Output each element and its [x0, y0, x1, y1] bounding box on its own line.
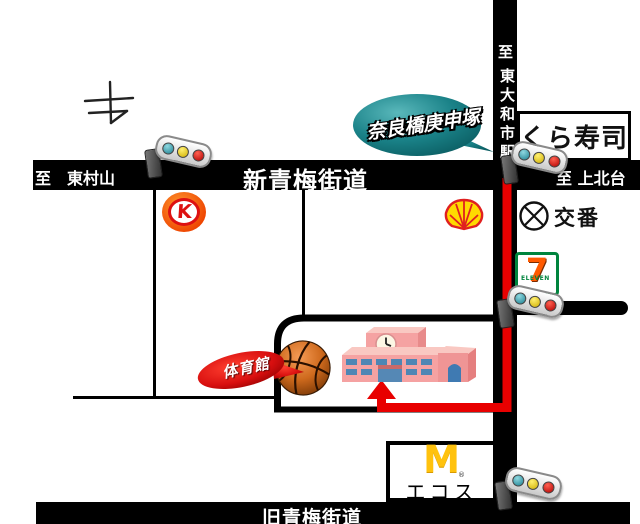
traffic-signal-main-intersection	[502, 143, 562, 187]
seven-eleven-word: ELEVEN	[521, 275, 550, 282]
signal-capsule	[509, 139, 570, 176]
ecos-label: エコス	[390, 476, 493, 505]
koban-circle-x-icon	[518, 200, 550, 232]
signal-capsule	[503, 465, 564, 502]
gym-arch-door	[448, 364, 461, 382]
signal-lamp-yellow	[176, 144, 190, 158]
signal-lamp-yellow	[528, 294, 542, 308]
traffic-signal-south	[496, 469, 556, 513]
koban-label: 交番	[554, 202, 600, 232]
dest-label-higashimurayama: 至 東村山	[35, 165, 115, 189]
circle-k-inner: K	[168, 198, 200, 226]
road-name-shin-oume: 新青梅街道	[243, 161, 368, 196]
traffic-signal-middle	[498, 287, 558, 331]
shell-icon	[444, 198, 484, 232]
dest-to-char: 至	[498, 41, 513, 62]
signal-lamp-red	[192, 148, 206, 162]
signal-lamp-green	[517, 147, 531, 161]
hand-drawn-access-map: 至 東村山 新青梅街道 至 上北台 至 東大和市駅 旧青梅街道 くら寿司 奈良橋…	[0, 0, 640, 524]
signal-lamp-red	[542, 480, 556, 494]
mcdonalds-ecos-box: M ® エコス	[386, 441, 497, 502]
hand-drawn-mark-icon	[80, 75, 140, 130]
signal-lamp-red	[548, 154, 562, 168]
mcdonalds-icon: M	[390, 441, 493, 478]
signal-lamp-green	[511, 473, 525, 487]
signal-capsule	[505, 283, 566, 320]
circle-k-icon: K	[162, 192, 206, 232]
signal-lamp-green	[161, 141, 175, 155]
seven-eleven-digit: 7	[518, 253, 556, 288]
signal-lamp-yellow	[532, 150, 546, 164]
signal-lamp-green	[513, 291, 527, 305]
signal-capsule	[153, 133, 214, 170]
road-name-kyu-oume: 旧青梅街道	[262, 503, 362, 524]
signal-lamp-red	[544, 298, 558, 312]
dest-label-kamikitadai: 至 上北台	[556, 165, 626, 189]
gym-building	[330, 327, 480, 387]
traffic-signal-west	[146, 137, 206, 181]
signal-lamp-yellow	[526, 476, 540, 490]
circle-k-letter: K	[176, 203, 192, 222]
